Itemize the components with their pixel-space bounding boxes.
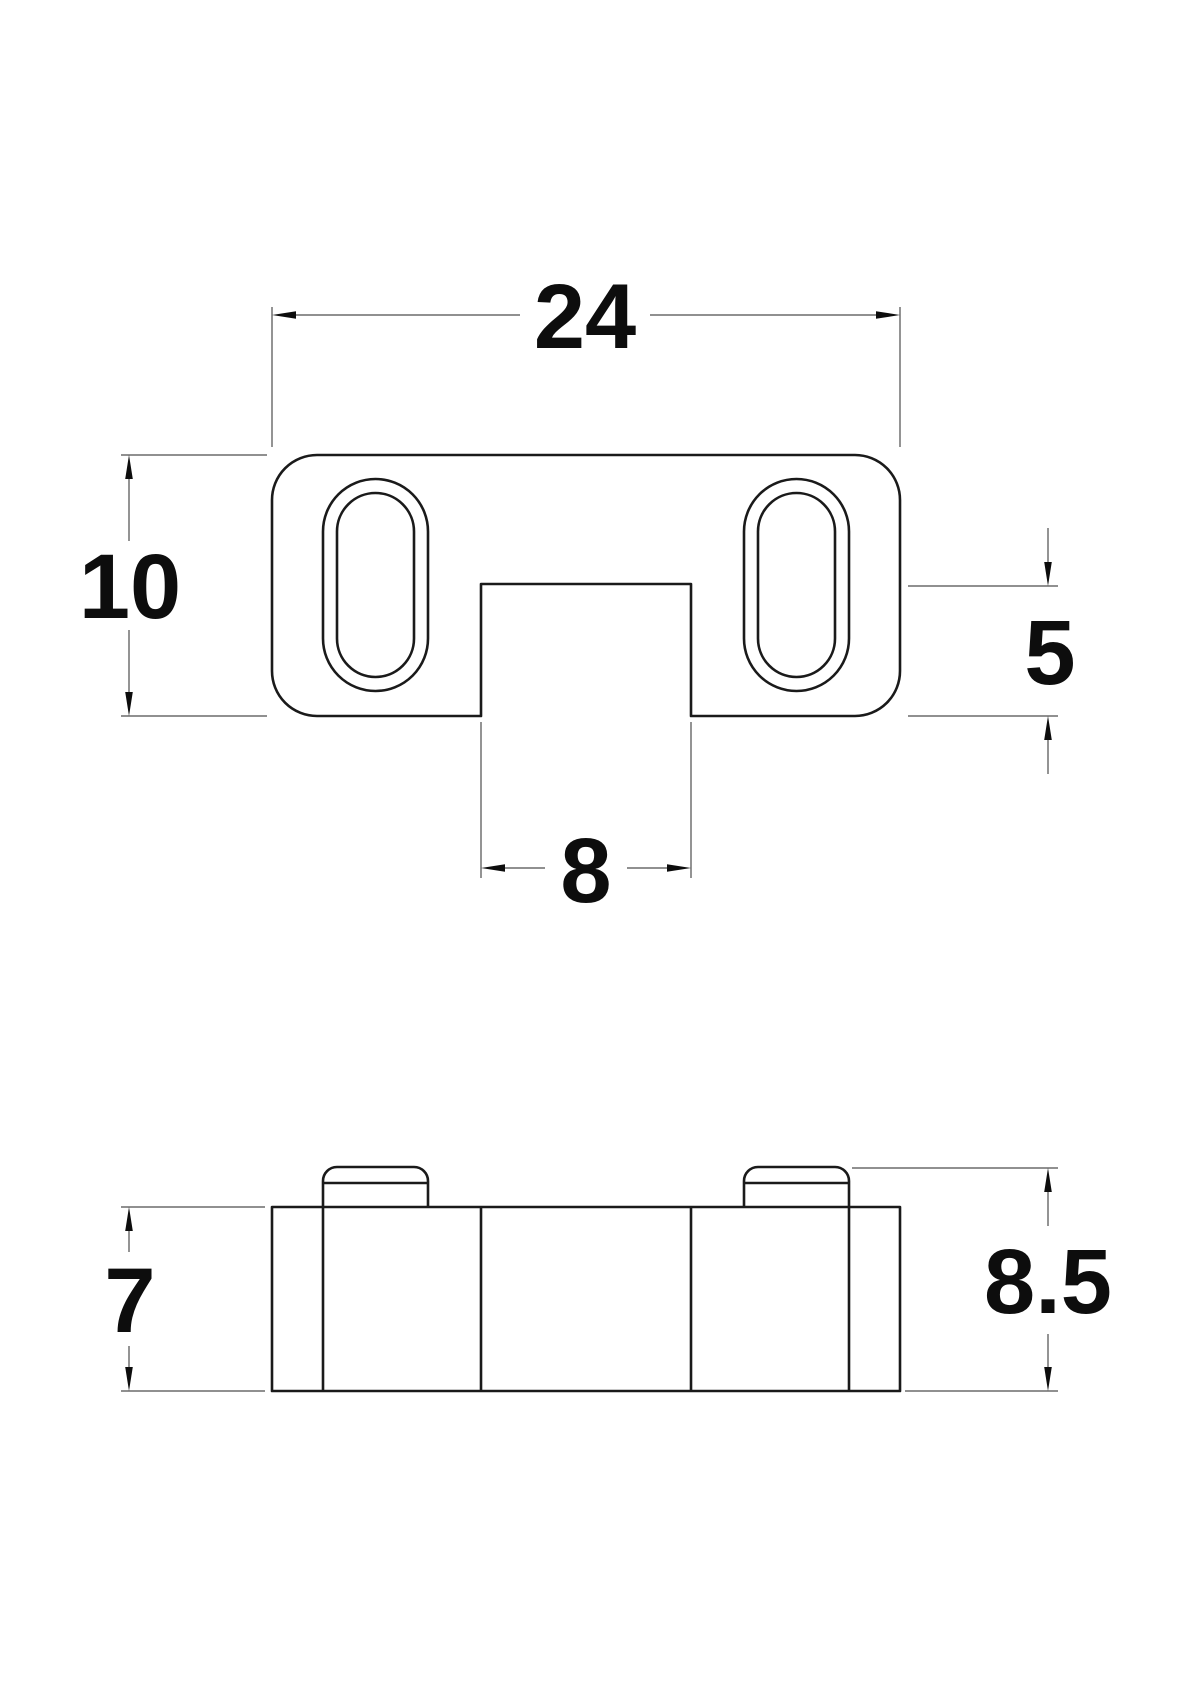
dim-label-side-body-height: 7 bbox=[104, 1250, 155, 1352]
side-view bbox=[272, 1167, 900, 1391]
arrowhead-up bbox=[125, 455, 133, 479]
arrowhead-up bbox=[1044, 716, 1052, 740]
dim-label-width: 24 bbox=[534, 266, 636, 368]
arrowhead-right bbox=[667, 864, 691, 872]
dimension-top-width: 24 bbox=[272, 266, 900, 447]
dimension-side-body-height: 7 bbox=[104, 1207, 265, 1391]
left-boss-tab bbox=[323, 1167, 428, 1207]
arrowhead-down bbox=[125, 1367, 133, 1391]
drawing-sheet: 24 10 5 bbox=[0, 0, 1200, 1698]
dimension-notch-width: 8 bbox=[481, 722, 691, 922]
left-slot-outer bbox=[323, 479, 428, 691]
side-view-body bbox=[272, 1207, 900, 1391]
dim-label-notch-depth: 5 bbox=[1024, 602, 1075, 704]
right-slot-outer bbox=[744, 479, 849, 691]
technical-drawing: 24 10 5 bbox=[0, 0, 1200, 1698]
arrowhead-up bbox=[125, 1207, 133, 1231]
right-slot-inner bbox=[758, 493, 835, 677]
dimension-side-total-height: 8.5 bbox=[852, 1168, 1112, 1391]
arrowhead-right bbox=[876, 311, 900, 319]
dim-label-height: 10 bbox=[79, 536, 181, 638]
arrowhead-left bbox=[272, 311, 296, 319]
dim-label-side-total-height: 8.5 bbox=[984, 1231, 1112, 1333]
arrowhead-down bbox=[125, 692, 133, 716]
dimension-notch-depth: 5 bbox=[908, 528, 1076, 774]
right-boss-tab bbox=[744, 1167, 849, 1207]
dimension-top-height: 10 bbox=[79, 455, 267, 716]
left-slot-inner bbox=[337, 493, 414, 677]
arrowhead-up bbox=[1044, 1168, 1052, 1192]
arrowhead-down bbox=[1044, 562, 1052, 586]
arrowhead-left bbox=[481, 864, 505, 872]
top-view bbox=[272, 455, 900, 716]
dim-label-notch-width: 8 bbox=[560, 820, 611, 922]
arrowhead-down bbox=[1044, 1367, 1052, 1391]
